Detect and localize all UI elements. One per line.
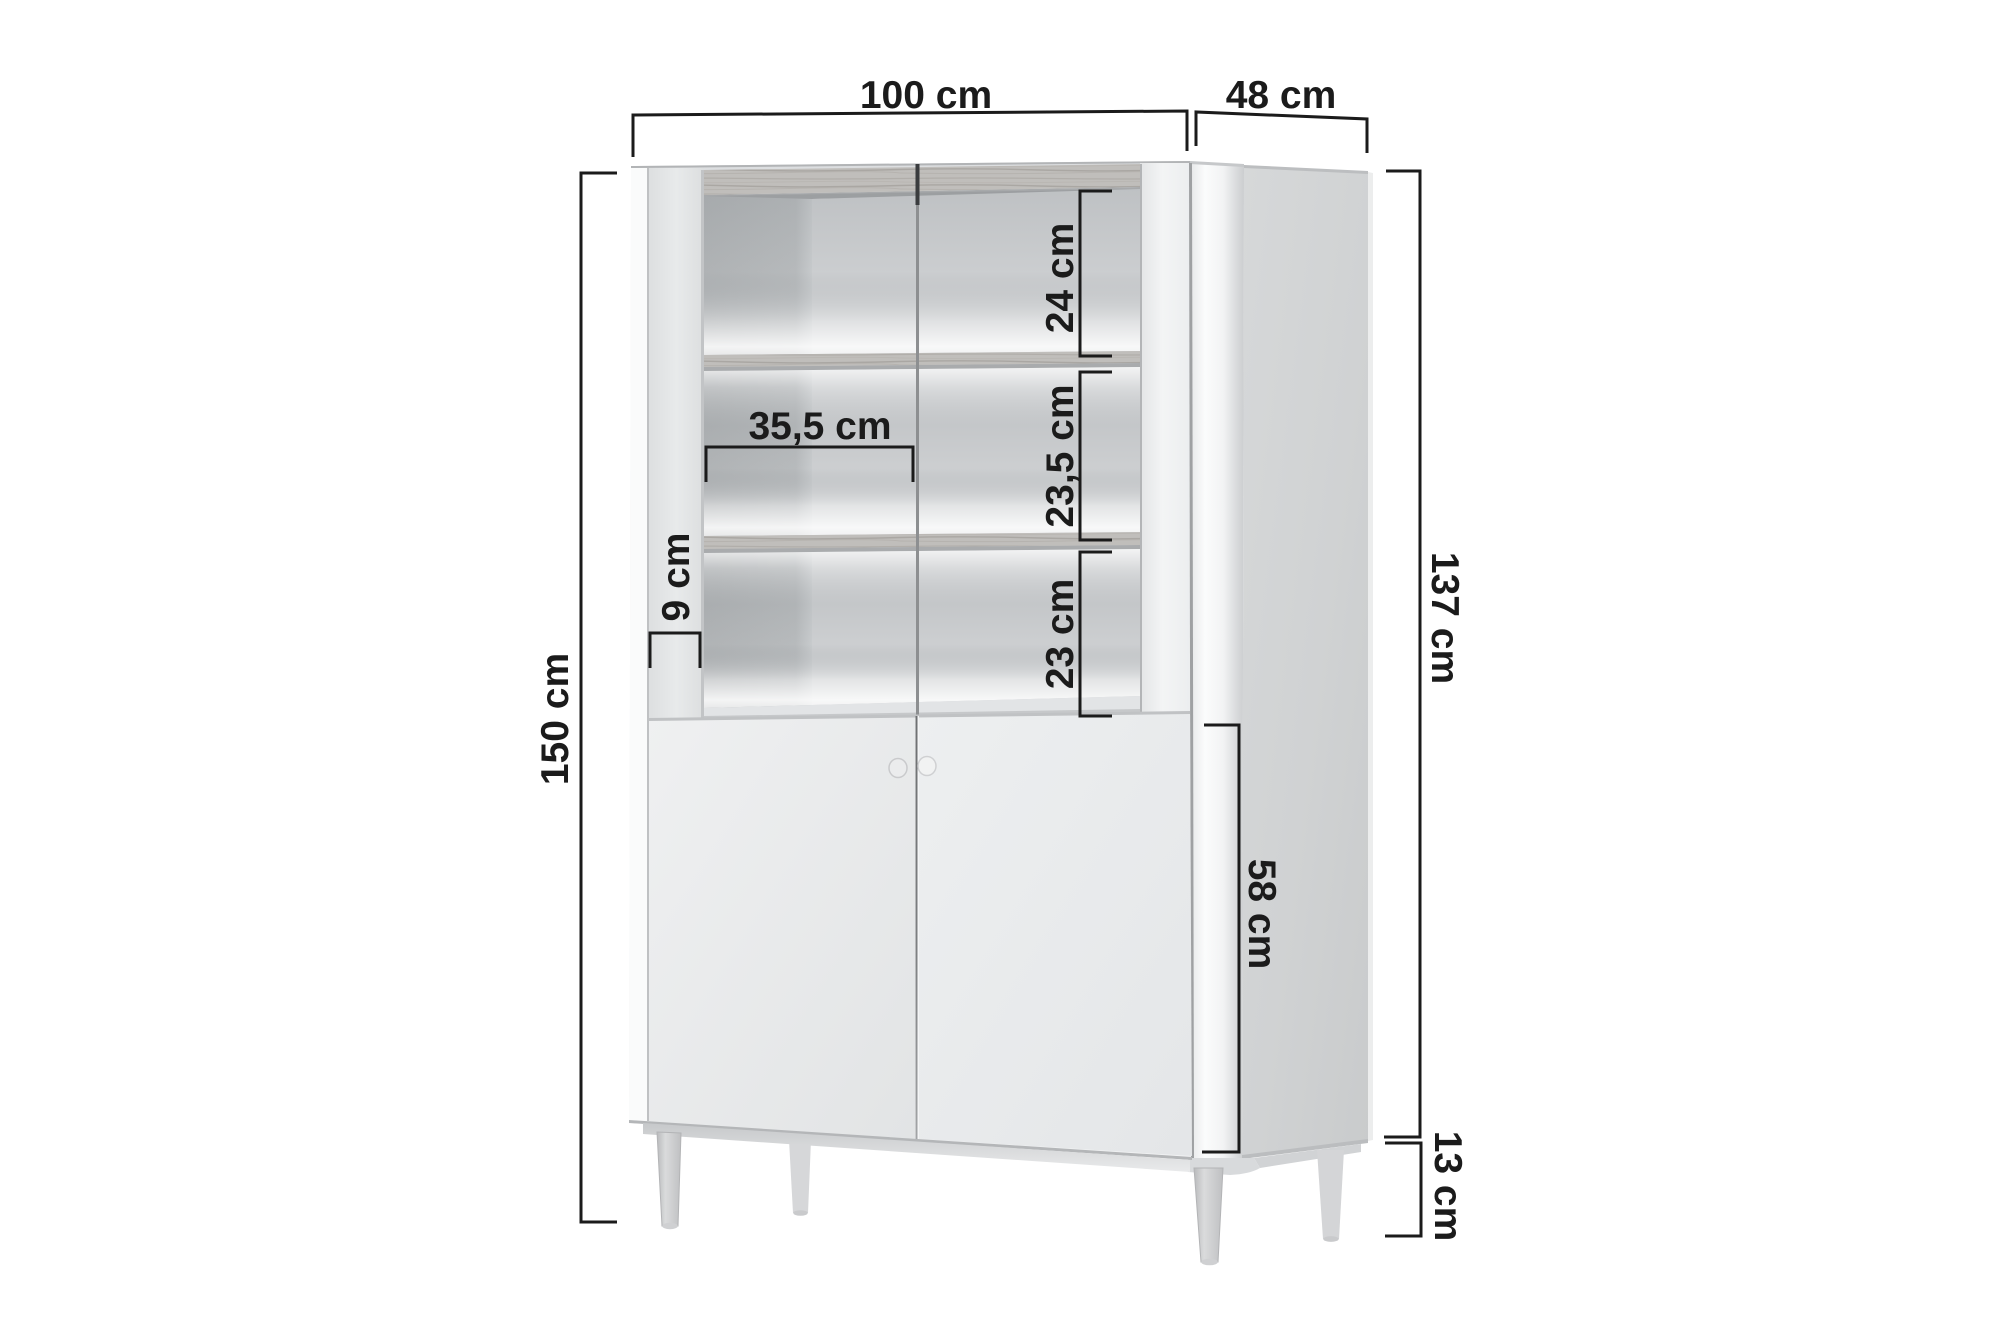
svg-text:58 cm: 58 cm — [1240, 859, 1283, 970]
svg-text:137 cm: 137 cm — [1423, 552, 1466, 684]
svg-text:100 cm: 100 cm — [860, 74, 992, 117]
svg-text:23 cm: 23 cm — [1039, 579, 1082, 690]
svg-text:9 cm: 9 cm — [655, 533, 698, 622]
svg-text:150 cm: 150 cm — [534, 653, 577, 785]
svg-text:13 cm: 13 cm — [1426, 1131, 1469, 1242]
svg-text:35,5 cm: 35,5 cm — [748, 405, 891, 448]
svg-text:23,5 cm: 23,5 cm — [1039, 384, 1082, 527]
svg-text:48 cm: 48 cm — [1226, 74, 1337, 117]
svg-text:24 cm: 24 cm — [1039, 223, 1082, 334]
